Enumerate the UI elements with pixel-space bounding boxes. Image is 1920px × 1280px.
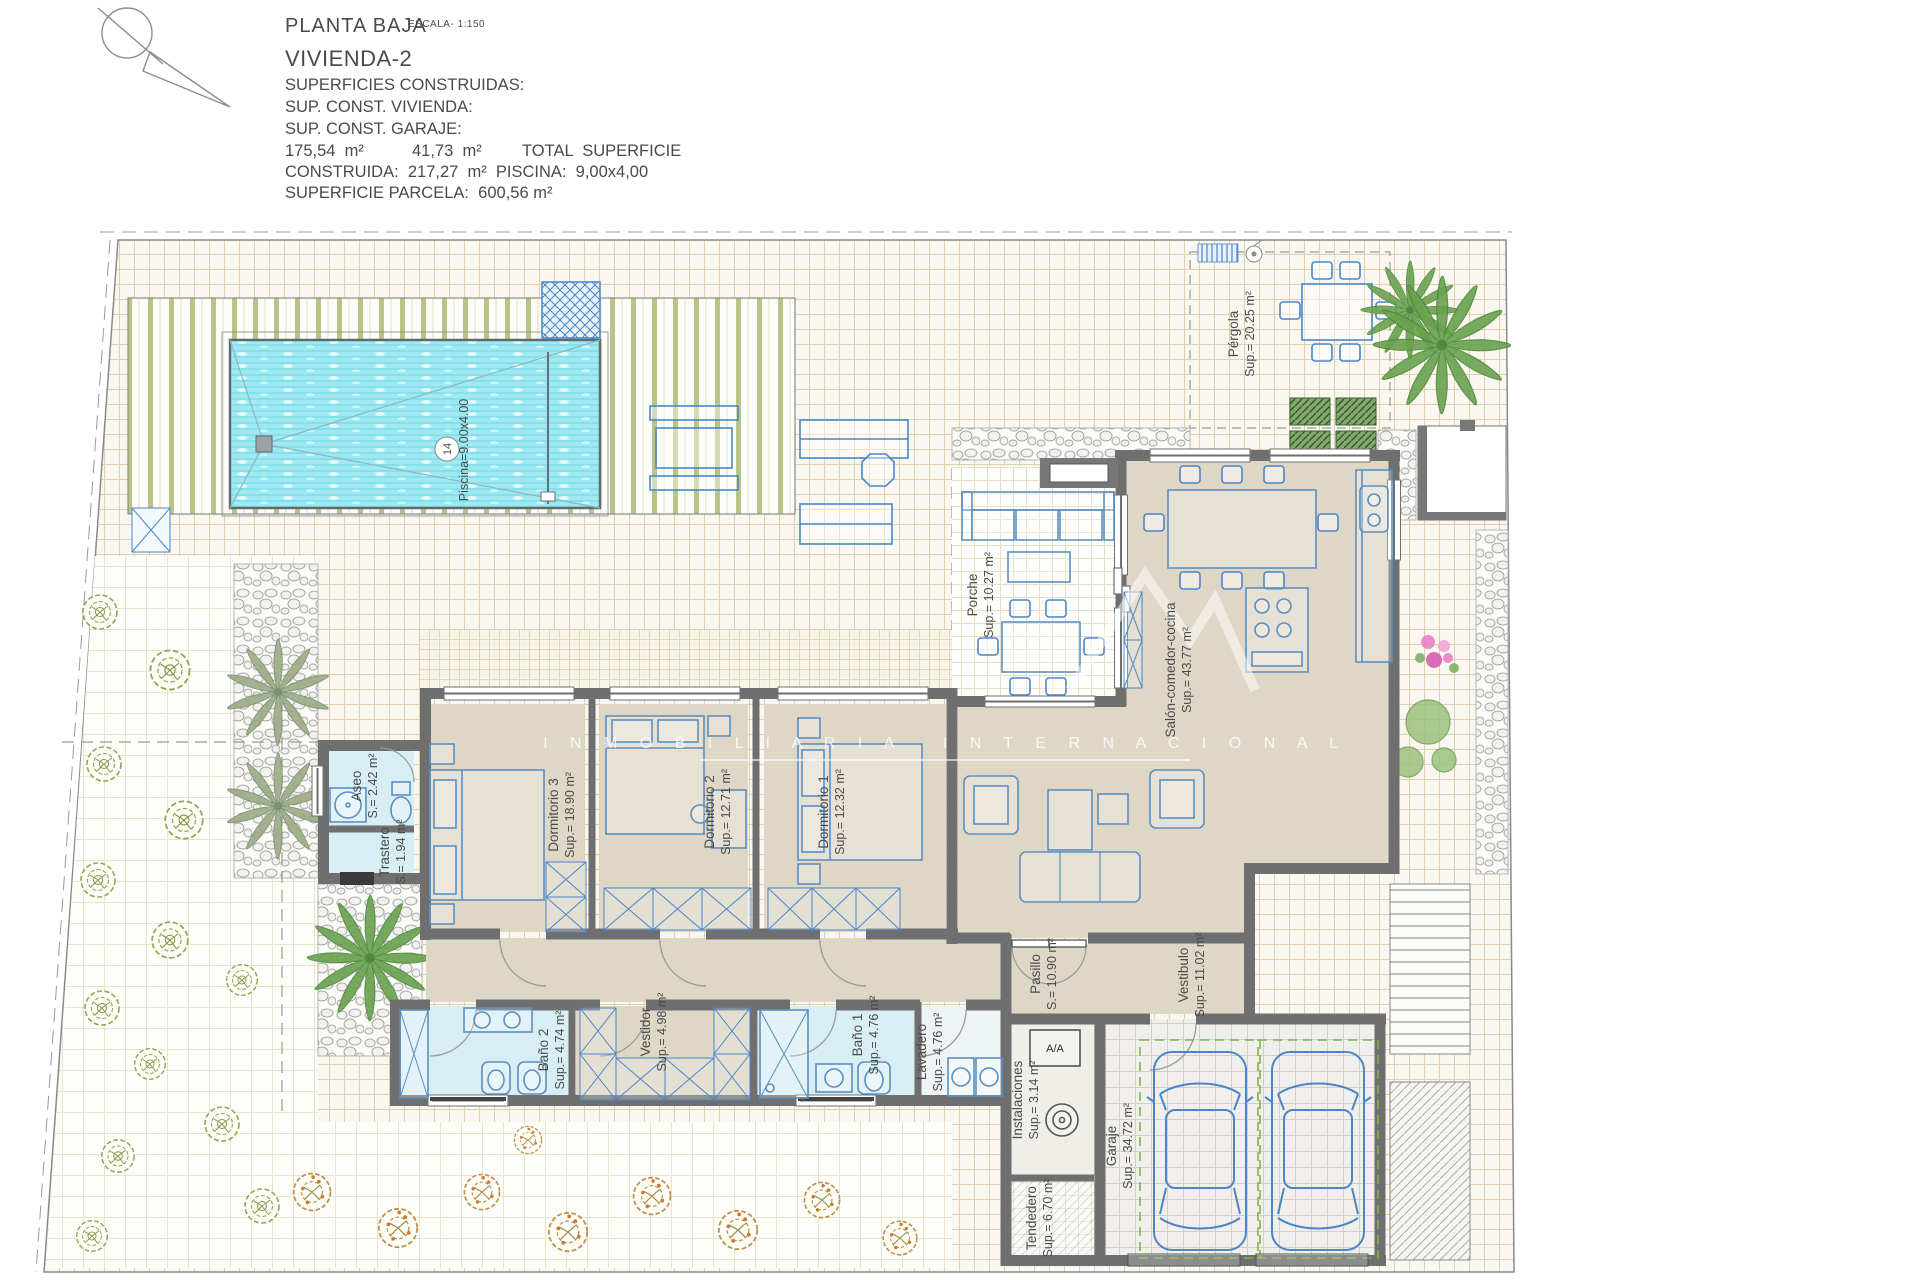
- svg-text:Sup.= 20.25 m²: Sup.= 20.25 m²: [1243, 291, 1257, 377]
- svg-text:S.= 1.94 m²: S.= 1.94 m²: [394, 820, 408, 885]
- svg-text:Salón-comedor-cocina: Salón-comedor-cocina: [1163, 602, 1178, 738]
- hatched-strip: [1390, 1082, 1470, 1260]
- svg-text:Sup.= 34.72 m²: Sup.= 34.72 m²: [1121, 1103, 1135, 1189]
- svg-text:Tendedero: Tendedero: [1024, 1186, 1039, 1250]
- floor-plan-drawing: PLANTA BAJA ESCALA- 1:150 VIVIENDA-2 SUP…: [0, 0, 1920, 1280]
- svg-text:Instalaciones: Instalaciones: [1010, 1060, 1025, 1139]
- svg-text:Sup.= 4.74 m²: Sup.= 4.74 m²: [553, 1011, 567, 1090]
- svg-text:Dormitorio 3: Dormitorio 3: [546, 778, 561, 852]
- svg-text:Pasillo: Pasillo: [1028, 954, 1043, 994]
- svg-text:Dormitorio 2: Dormitorio 2: [702, 775, 717, 849]
- svg-text:S.= 10.90 m²: S.= 10.90 m²: [1045, 938, 1059, 1010]
- svg-text:Sup.= 11.02 m²: Sup.= 11.02 m²: [1193, 933, 1207, 1018]
- plan-title: PLANTA BAJA: [285, 15, 427, 37]
- entry-door-leaf: [1012, 940, 1049, 947]
- watermark-text: I N M O B I L I A R I A I N T E R N A C …: [543, 735, 1347, 752]
- deck-shower-pad: [132, 508, 170, 552]
- svg-text:Baño 1: Baño 1: [850, 1014, 865, 1057]
- svg-text:Sup.= 12.71 m²: Sup.= 12.71 m²: [719, 769, 733, 855]
- sup-vivienda-label: SUP. CONST. VIVIENDA:: [285, 98, 473, 116]
- title-block: PLANTA BAJA ESCALA- 1:150 VIVIENDA-2 SUP…: [285, 15, 681, 202]
- svg-text:Vestibulo: Vestibulo: [1176, 948, 1191, 1003]
- svg-text:Trastero: Trastero: [377, 827, 392, 877]
- surfaces-heading: SUPERFICIES CONSTRUIDAS:: [285, 76, 524, 94]
- slatted-shade: [1390, 884, 1470, 1054]
- swimming-pool: [230, 340, 600, 508]
- dwelling-name: VIVIENDA-2: [285, 46, 412, 71]
- pool-label: Piscina=9.00x4.00: [457, 399, 471, 502]
- sup-garaje-label: SUP. CONST. GARAJE:: [285, 120, 462, 138]
- bed-dormitorio-3: [430, 744, 544, 924]
- svg-text:Sup.= 3.14 m²: Sup.= 3.14 m²: [1027, 1061, 1041, 1140]
- value-garaje: 41,73 m²: [412, 142, 482, 160]
- svg-text:S.= 2.42 m²: S.= 2.42 m²: [366, 754, 380, 819]
- gravel-bed-right: [1476, 530, 1508, 874]
- room-pasillo: [426, 938, 1006, 1002]
- value-total-heading: TOTAL SUPERFICIE: [522, 142, 681, 160]
- garden-shed: [1418, 420, 1506, 520]
- svg-text:Sup.= 4.76 m²: Sup.= 4.76 m²: [931, 1013, 945, 1092]
- construida-line: CONSTRUIDA: 217,27 m² PISCINA: 9,00x4,00: [285, 163, 648, 181]
- parcela-line: SUPERFICIE PARCELA: 600,56 m²: [285, 184, 553, 202]
- pool-drain: [256, 436, 272, 452]
- svg-text:Porche: Porche: [965, 574, 980, 617]
- svg-text:Sup.= 4.76 m²: Sup.= 4.76 m²: [867, 996, 881, 1075]
- svg-text:Lavadero: Lavadero: [914, 1024, 929, 1080]
- window: [1050, 464, 1108, 482]
- value-vivienda: 175,54 m²: [285, 142, 364, 160]
- svg-text:Vestidor: Vestidor: [638, 1007, 653, 1056]
- scale-note: ESCALA- 1:150: [408, 19, 485, 30]
- pool-terrace: 14 Piscina=9.00x4.00: [128, 282, 908, 552]
- room-garaje: [1105, 1019, 1380, 1261]
- svg-text:Sup.= 18.90 m²: Sup.= 18.90 m²: [563, 772, 577, 858]
- svg-text:Sup.= 43.77 m²: Sup.= 43.77 m²: [1180, 627, 1194, 713]
- svg-text:Sup.= 4.98 m²: Sup.= 4.98 m²: [655, 993, 669, 1072]
- trastero-door: [340, 872, 374, 885]
- pool-grate-pad: [542, 282, 600, 338]
- svg-text:Sup.= 10.27 m²: Sup.= 10.27 m²: [982, 552, 996, 638]
- svg-text:Baño 2: Baño 2: [536, 1029, 551, 1072]
- svg-text:Dormitorio 1: Dormitorio 1: [816, 775, 831, 849]
- svg-text:Sup.= 12.32 m²: Sup.= 12.32 m²: [833, 769, 847, 855]
- svg-text:Pérgola: Pérgola: [1226, 310, 1241, 357]
- svg-text:Sup.= 6.70 m²: Sup.= 6.70 m²: [1041, 1179, 1055, 1258]
- north-arrow-icon: [98, 8, 230, 107]
- svg-text:Piscina=9.00x4.00: Piscina=9.00x4.00: [457, 399, 471, 502]
- grille-icon: [1198, 244, 1238, 262]
- ac-unit-label: A/A: [1046, 1043, 1064, 1055]
- pool-tag-number: 14: [442, 443, 454, 455]
- svg-text:Garaje: Garaje: [1104, 1126, 1119, 1167]
- svg-text:Aseo: Aseo: [349, 771, 364, 802]
- facade-strip: [420, 630, 952, 688]
- picnic-table-deck: [650, 406, 738, 490]
- floor-plan-sheet: PLANTA BAJA ESCALA- 1:150 VIVIENDA-2 SUP…: [0, 0, 1920, 1280]
